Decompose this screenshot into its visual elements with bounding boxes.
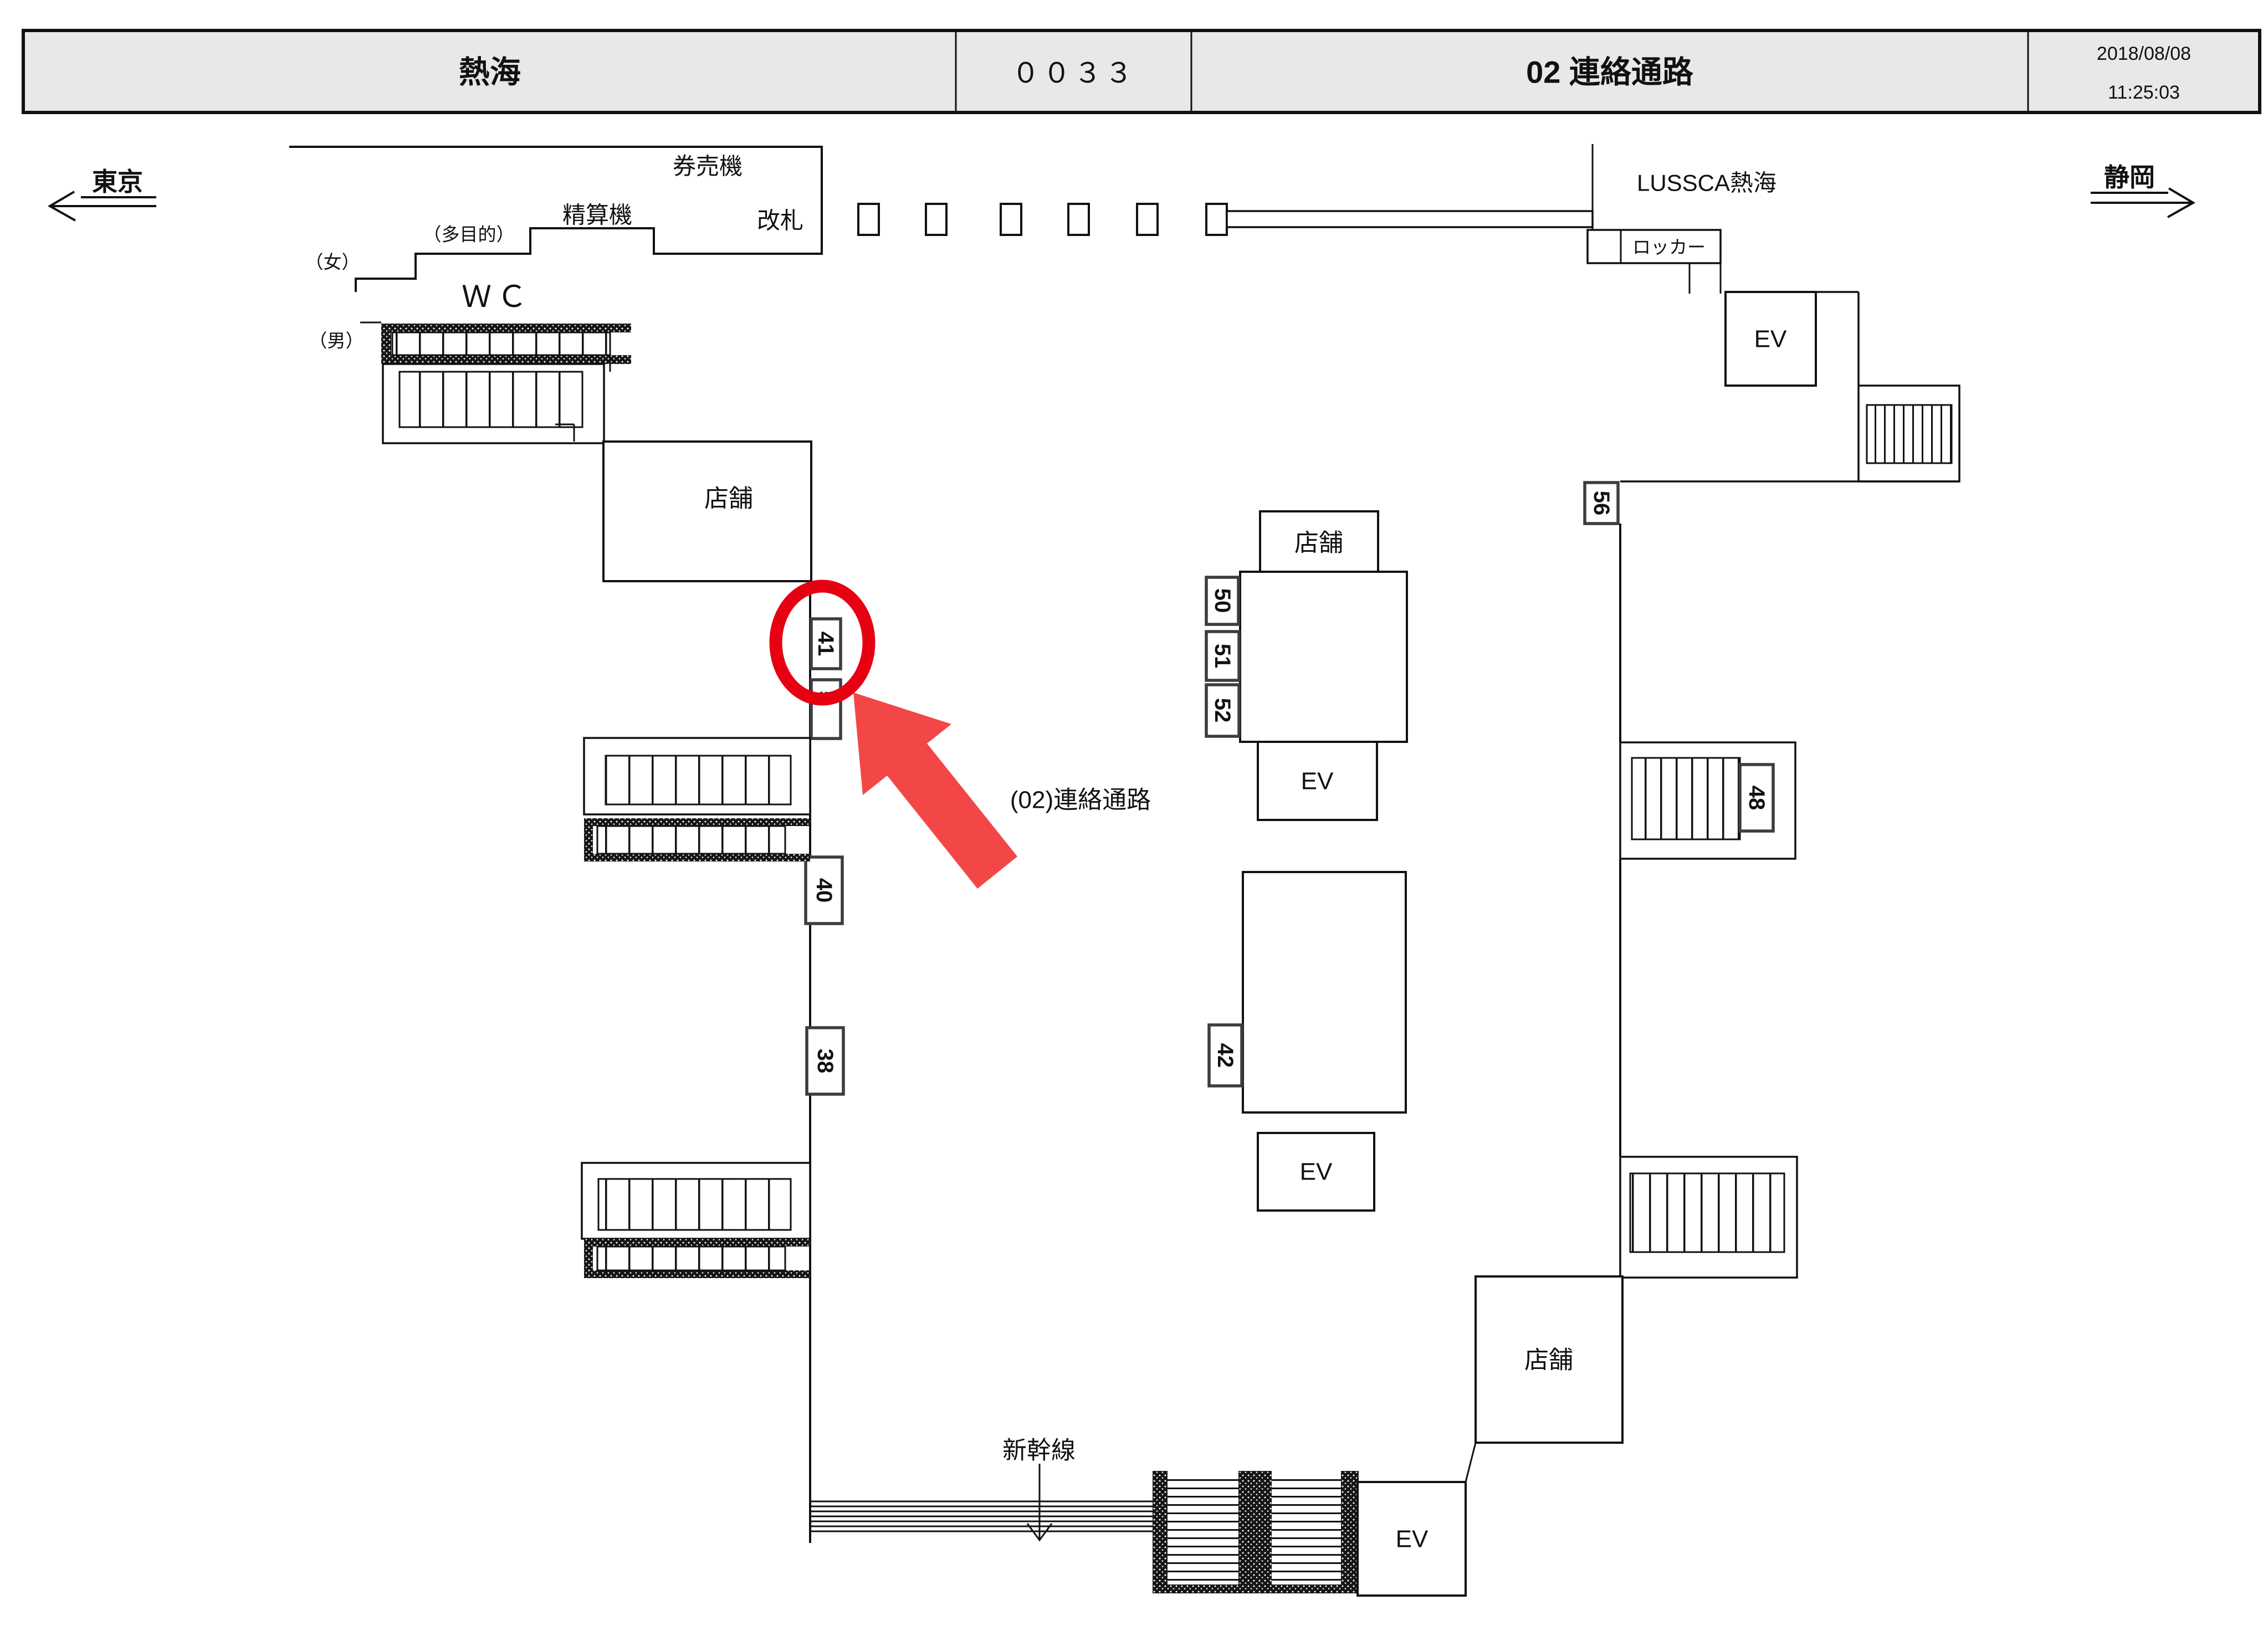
stair-hatch-band [584, 818, 593, 861]
store-label: 店舗 [1294, 530, 1343, 557]
gate-unit [1001, 204, 1021, 235]
stair-treads [1168, 1478, 1238, 1583]
stair-hatch-band [1238, 1471, 1272, 1588]
ad-tag-38[interactable]: 38 [807, 1028, 843, 1094]
tag-number: 50 [1210, 588, 1235, 613]
store-label: 店舗 [1524, 1347, 1573, 1374]
stair-treads [1630, 1173, 1784, 1252]
gate-unit [1068, 204, 1089, 235]
stair-treads [597, 826, 785, 854]
gate-fence [1227, 211, 1593, 227]
ad-tag-56[interactable]: 56 [1585, 483, 1618, 524]
tag-number: 56 [1589, 491, 1614, 516]
tag-number: 42 [1213, 1043, 1237, 1068]
lussca-label: LUSSCA熱海 [1637, 170, 1776, 196]
ticket-machines-label: 券売機 [673, 153, 743, 180]
stair-treads [392, 332, 610, 355]
store-block-bottom-right: 店舗 [1466, 1276, 1622, 1482]
highlight-arrow-icon [853, 693, 1017, 889]
men-toilet-label: （男） [309, 331, 364, 351]
tag-number: 51 [1210, 644, 1235, 669]
stair-hatch-band [584, 1270, 810, 1278]
elevator-label: EV [1301, 768, 1334, 795]
store-label: 店舗 [704, 485, 753, 512]
stair-treads [597, 1247, 785, 1270]
stair-treads [598, 1179, 791, 1230]
central-island-1: 店舗 EV [1240, 511, 1407, 820]
stair-hatch-band [1341, 1471, 1359, 1588]
stair-treads [1867, 405, 1952, 463]
ticket-office-area: 券売機 精算機 改札 （多目的） （女） ＷＣ （男） [289, 147, 822, 351]
central-island-2: EV [1243, 872, 1406, 1211]
tag-number: 38 [813, 1049, 837, 1074]
track-lines [810, 1501, 1154, 1531]
gate-unit [926, 204, 946, 235]
bottom-left-stairs [582, 1163, 810, 1278]
direction-west-label: 東京 [92, 167, 143, 196]
stair-hatch-band [1153, 1471, 1168, 1588]
right-top-structures: LUSSCA熱海 ロッカー EV [1588, 170, 1959, 482]
ad-tag-48[interactable]: 48 [1740, 765, 1773, 831]
gate-unit [858, 204, 879, 235]
ad-tag-52[interactable]: 52 [1206, 685, 1239, 736]
station-name: 熱海 [459, 55, 521, 90]
header-bar: 熱海 ００３３ 02 連絡通路 2018/08/08 11:25:03 [23, 30, 2260, 112]
stair-treads [1632, 758, 1740, 839]
shinkansen-stairs [1153, 1471, 1359, 1593]
fare-adjustment-label: 精算機 [562, 202, 632, 228]
header-frame [23, 30, 2260, 112]
direction-east-label: 静岡 [2104, 163, 2155, 192]
tag-number: 48 [1744, 786, 1769, 811]
page-code: ００３３ [1012, 58, 1136, 89]
stair-treads [400, 372, 582, 427]
stair-treads [1272, 1478, 1341, 1583]
direction-west: 東京 [50, 167, 156, 220]
ticket-gates [858, 144, 1593, 235]
mid-left-stairs [584, 738, 810, 861]
gate-unit [1137, 204, 1158, 235]
ad-tag-51[interactable]: 51 [1206, 632, 1239, 680]
ticket-gate-label: 改札 [757, 208, 803, 234]
store-block-upper-left: 店舗 [555, 424, 811, 581]
locker-label: ロッカー [1632, 237, 1706, 258]
stair-hatch-band [584, 854, 810, 861]
ad-tag-50[interactable]: 50 [1206, 577, 1238, 624]
passage-label: (02)連絡通路 [1010, 787, 1151, 814]
shinkansen-area: 新幹線 EV [810, 1437, 1466, 1596]
structure-box [1240, 572, 1407, 742]
tag-number: 40 [812, 878, 836, 903]
ad-tag-41[interactable]: 41 [811, 619, 841, 669]
stair-hatch-band [381, 355, 631, 364]
wc-stairs [381, 324, 631, 443]
stair-hatch-band [584, 818, 810, 826]
header-time: 11:25:03 [2108, 82, 2180, 103]
gate-unit [1206, 204, 1227, 235]
tag-number: 41 [813, 632, 838, 657]
elevator-label: EV [1754, 326, 1787, 353]
ad-tag-5x[interactable]: 5 [811, 680, 841, 739]
stair-hatch-band [381, 324, 631, 332]
tag-box[interactable] [811, 680, 841, 739]
right-stairs-lower [1620, 1157, 1797, 1278]
ad-tag-40[interactable]: 40 [806, 857, 842, 924]
stair-hatch-band [584, 1239, 593, 1278]
stair-hatch-band [584, 1239, 810, 1247]
header-date: 2018/08/08 [2097, 43, 2191, 64]
toilet-label: ＷＣ [462, 280, 533, 314]
multipurpose-toilet-label: （多目的） [423, 224, 515, 245]
stair-treads [606, 756, 791, 804]
elevator-label: EV [1300, 1158, 1333, 1186]
floor-title: 02 連絡通路 [1526, 55, 1694, 90]
elevator-label: EV [1396, 1526, 1429, 1553]
stair-hatch-band [1153, 1584, 1359, 1593]
women-toilet-label: （女） [305, 252, 360, 273]
tag-number: 52 [1210, 698, 1235, 723]
wall-line [1466, 1443, 1476, 1482]
ad-tag-42[interactable]: 42 [1209, 1025, 1242, 1086]
structure-box [1243, 872, 1406, 1112]
stair-hatch-band [381, 324, 391, 364]
shinkansen-label: 新幹線 [1002, 1437, 1076, 1464]
station-floor-map: 熱海 ００３３ 02 連絡通路 2018/08/08 11:25:03 東京 静… [0, 0, 2268, 1641]
direction-east: 静岡 [2091, 163, 2193, 217]
